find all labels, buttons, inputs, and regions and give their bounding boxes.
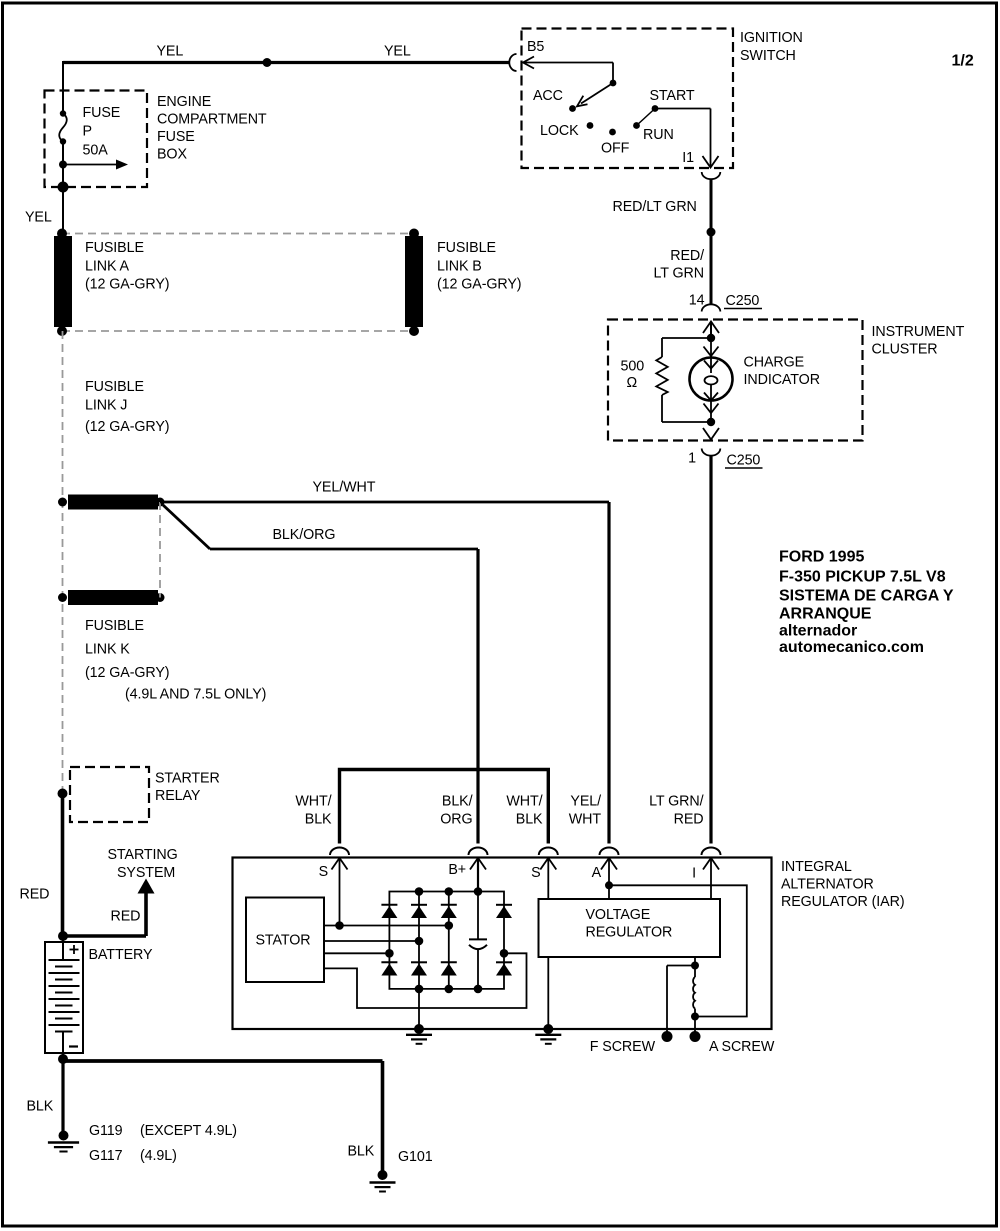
svg-text:FUSIBLE: FUSIBLE [85,618,144,634]
svg-text:SWITCH: SWITCH [740,48,796,64]
svg-text:CHARGE: CHARGE [744,355,805,371]
svg-text:FUSIBLE: FUSIBLE [85,240,144,256]
svg-text:A SCREW: A SCREW [709,1039,775,1055]
svg-text:I1: I1 [682,150,694,166]
svg-text:S: S [531,865,540,881]
svg-text:G117: G117 [89,1148,123,1164]
svg-text:YEL: YEL [25,210,52,226]
svg-text:FUSE: FUSE [83,105,121,121]
svg-text:LINK K: LINK K [85,642,130,658]
svg-text:STARTING: STARTING [108,847,178,863]
svg-text:RED/: RED/ [670,248,704,264]
svg-text:COMPARTMENT: COMPARTMENT [157,112,267,128]
svg-text:(12 GA-GRY): (12 GA-GRY) [85,419,169,435]
svg-text:S: S [319,864,328,880]
svg-text:SYSTEM: SYSTEM [117,865,175,881]
svg-text:INTEGRAL: INTEGRAL [781,859,852,875]
svg-text:BLK: BLK [305,812,332,828]
svg-text:C250: C250 [726,293,760,309]
svg-text:BLK: BLK [348,1144,375,1160]
svg-text:WHT/: WHT/ [295,794,331,810]
svg-text:FUSE: FUSE [157,129,195,145]
svg-text:(EXCEPT 4.9L): (EXCEPT 4.9L) [140,1123,237,1139]
svg-text:BLK/ORG: BLK/ORG [273,527,336,543]
svg-text:BLK/: BLK/ [442,794,473,810]
svg-text:RED/LT GRN: RED/LT GRN [613,199,697,215]
svg-text:YEL: YEL [384,44,411,60]
svg-text:G101: G101 [398,1149,433,1165]
svg-text:LINK A: LINK A [85,259,129,275]
svg-text:RED: RED [20,887,50,903]
svg-text:ORG: ORG [440,812,472,828]
svg-text:50A: 50A [83,143,109,159]
svg-text:YEL/: YEL/ [570,794,601,810]
svg-text:LT GRN/: LT GRN/ [649,794,704,810]
svg-text:500: 500 [621,359,645,375]
svg-text:IGNITION: IGNITION [740,30,803,46]
svg-text:1: 1 [688,451,696,467]
svg-text:(4.9L AND 7.5L ONLY): (4.9L AND 7.5L ONLY) [125,687,266,703]
svg-text:(12 GA-GRY): (12 GA-GRY) [437,277,521,293]
svg-text:RED: RED [111,909,141,925]
svg-text:C250: C250 [727,453,761,469]
svg-text:ENGINE: ENGINE [157,94,211,110]
svg-text:YEL: YEL [157,44,184,60]
svg-text:FORD 1995: FORD 1995 [779,549,864,566]
svg-text:WHT: WHT [569,812,602,828]
svg-text:B+: B+ [448,862,466,878]
svg-text:RELAY: RELAY [155,788,201,804]
svg-text:F-350 PICKUP 7.5L V8: F-350 PICKUP 7.5L V8 [779,569,946,586]
svg-text:FUSIBLE: FUSIBLE [85,379,144,395]
svg-text:SISTEMA DE CARGA Y: SISTEMA DE CARGA Y [779,588,954,605]
svg-text:BLK: BLK [27,1099,54,1115]
svg-text:INDICATOR: INDICATOR [744,372,820,388]
svg-text:P: P [83,124,92,140]
svg-text:1/2: 1/2 [952,53,974,70]
svg-text:CLUSTER: CLUSTER [872,342,938,358]
svg-text:LINK B: LINK B [437,259,482,275]
svg-text:ALTERNATOR: ALTERNATOR [781,877,874,893]
svg-text:A: A [592,865,602,881]
svg-text:WHT/: WHT/ [506,794,542,810]
svg-text:(4.9L): (4.9L) [140,1148,177,1164]
svg-text:G119: G119 [89,1123,123,1139]
svg-text:F SCREW: F SCREW [590,1039,656,1055]
svg-text:VOLTAGE: VOLTAGE [586,907,651,923]
svg-text:I: I [692,866,696,882]
svg-text:LT GRN: LT GRN [653,266,704,282]
svg-text:OFF: OFF [601,141,630,157]
svg-text:INSTRUMENT: INSTRUMENT [872,324,965,340]
svg-text:STARTER: STARTER [155,771,220,787]
svg-text:BLK: BLK [516,812,543,828]
svg-text:14: 14 [689,293,705,309]
svg-text:(12 GA-GRY): (12 GA-GRY) [85,665,169,681]
svg-text:Ω: Ω [627,375,638,391]
svg-text:STATOR: STATOR [256,933,311,949]
svg-text:BOX: BOX [157,147,187,163]
svg-text:REGULATOR: REGULATOR [586,925,673,941]
svg-text:ARRANQUE: ARRANQUE [779,606,872,623]
svg-text:RUN: RUN [643,127,674,143]
svg-text:B5: B5 [527,39,544,55]
svg-text:ACC: ACC [533,88,563,104]
svg-text:alternador: alternador [779,623,857,640]
svg-text:FUSIBLE: FUSIBLE [437,240,496,256]
svg-text:REGULATOR (IAR): REGULATOR (IAR) [781,894,904,910]
svg-text:LINK J: LINK J [85,398,127,414]
svg-text:BATTERY: BATTERY [89,947,153,963]
svg-text:RED: RED [674,812,704,828]
svg-text:START: START [650,88,695,104]
svg-text:(12 GA-GRY): (12 GA-GRY) [85,277,169,293]
svg-text:LOCK: LOCK [540,123,579,139]
svg-text:automecanico.com: automecanico.com [779,639,924,656]
svg-text:YEL/WHT: YEL/WHT [313,480,376,496]
